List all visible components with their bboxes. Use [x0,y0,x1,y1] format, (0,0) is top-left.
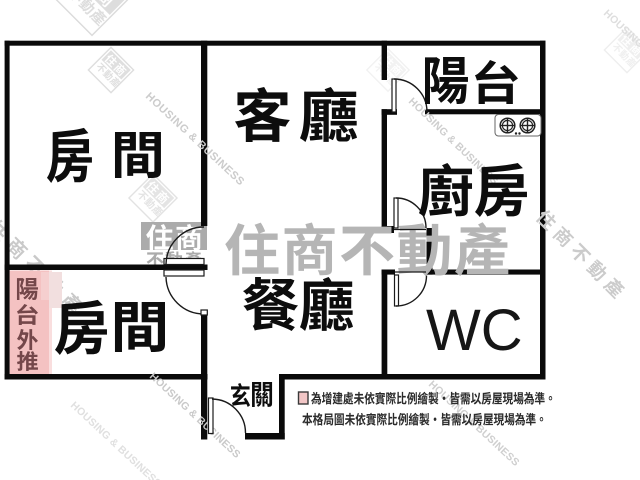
svg-text:WC: WC [426,298,523,363]
